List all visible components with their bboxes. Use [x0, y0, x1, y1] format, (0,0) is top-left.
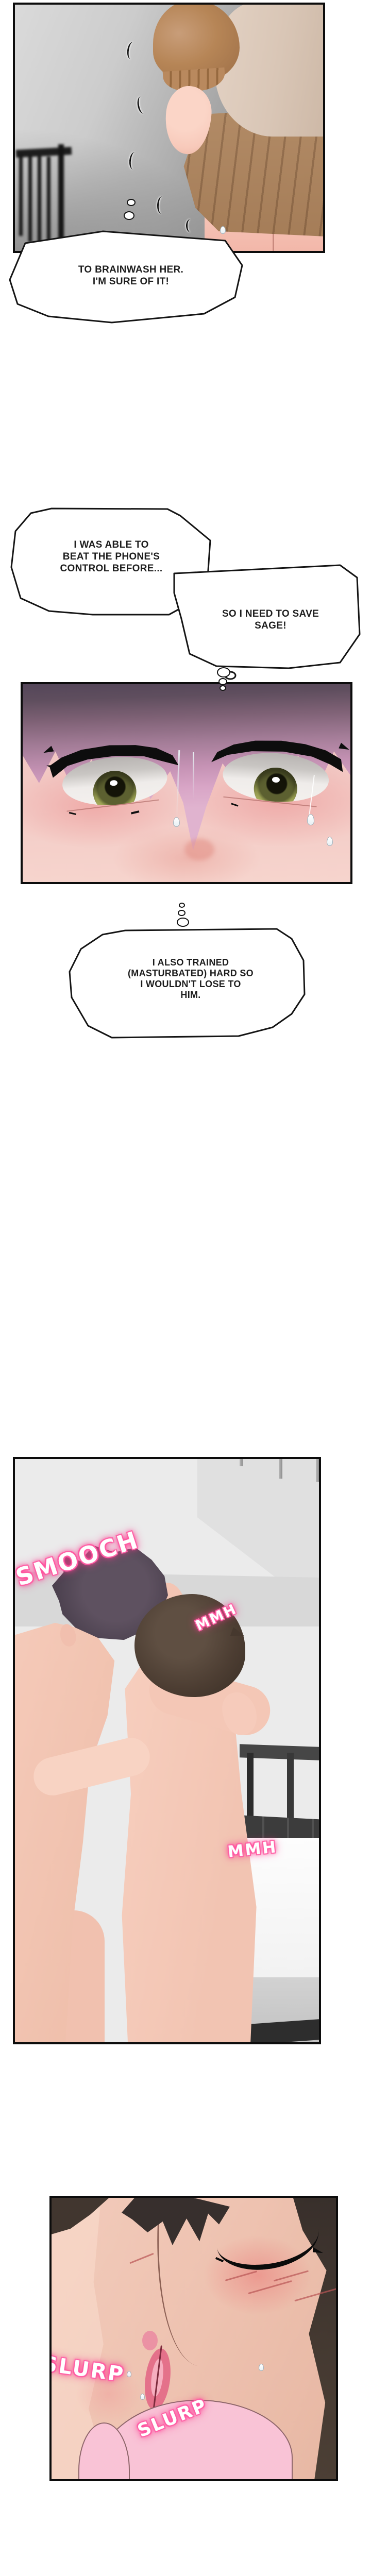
thought-dot [218, 678, 227, 685]
lower-lash [231, 803, 238, 806]
sweat-drop [140, 2394, 145, 2400]
iris [252, 766, 299, 805]
thought-bubble-pair [5, 502, 366, 682]
webtoon-page: TO BRAINWASH HER. I'M SURE OF IT! I WAS … [0, 0, 371, 2576]
tear-drop [327, 837, 333, 846]
bubble-line: SO I NEED TO SAVE [193, 608, 348, 620]
blind-slat [316, 1459, 319, 1482]
bubble-text-save: SO I NEED TO SAVE SAGE! [193, 608, 348, 632]
bubble-line: CONTROL BEFORE... [34, 563, 189, 574]
sweat-drop [259, 2364, 264, 2371]
thought-dot [220, 685, 226, 691]
bubble-line: BEAT THE PHONE'S [34, 551, 189, 563]
lower-lash [69, 812, 76, 815]
panel-face-closeup [21, 682, 352, 884]
panel-kiss-closeup: SLURP SLURP [49, 2196, 338, 2481]
tear-drop [173, 817, 180, 827]
nose-shadow [184, 839, 214, 860]
lower-lash [131, 810, 139, 814]
bubble-line: I WOULDN'T LOSE TO [85, 979, 296, 990]
bubble-line: I ALSO TRAINED [85, 957, 296, 968]
blind-slat [279, 1459, 282, 1479]
tear-drop [307, 814, 314, 825]
panel-embrace: SMOOCH MMH MMH [13, 1457, 321, 2044]
bubble-line: I'M SURE OF IT! [23, 276, 239, 287]
bubble-line: HIM. [85, 990, 296, 1001]
bubble-line: (MASTURBATED) HARD SO [85, 968, 296, 979]
bubble-text-able: I WAS ABLE TO BEAT THE PHONE'S CONTROL B… [34, 539, 189, 574]
right-eye [207, 731, 345, 827]
bubble-text-trained: I ALSO TRAINED (MASTURBATED) HARD SO I W… [85, 957, 296, 1001]
bubble-text-brainwash: TO BRAINWASH HER. I'M SURE OF IT! [23, 264, 239, 287]
thought-dot [178, 910, 185, 916]
upper-lip [142, 2331, 158, 2350]
bubble-line: SAGE! [193, 620, 348, 632]
thought-dot [127, 199, 136, 206]
thought-dot [217, 667, 230, 677]
left-eye [47, 734, 183, 830]
thought-dot [124, 211, 134, 220]
tear-streak [193, 752, 194, 800]
bubble-line: I WAS ABLE TO [34, 539, 189, 551]
panel-bedroom-standing [13, 3, 325, 253]
thought-dot [177, 918, 189, 927]
blind-slat [240, 1459, 243, 1466]
thought-dot [179, 903, 185, 908]
bubble-line: TO BRAINWASH HER. [23, 264, 239, 276]
headboard-bar [19, 154, 23, 236]
